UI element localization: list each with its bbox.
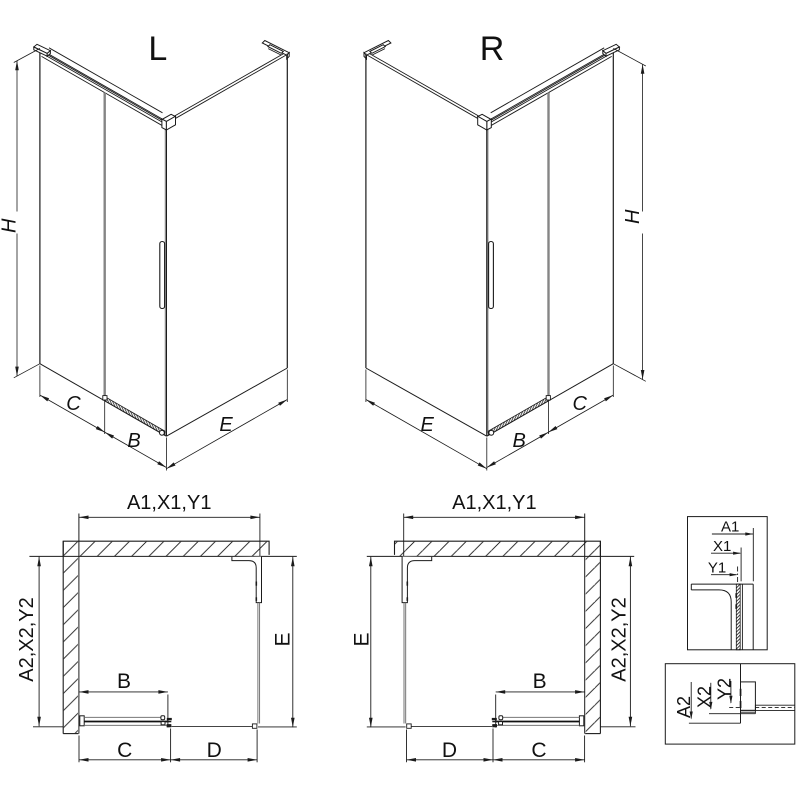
svg-text:C: C <box>531 739 546 762</box>
svg-text:A2,X2,Y2: A2,X2,Y2 <box>608 597 630 682</box>
svg-text:D: D <box>207 739 222 762</box>
svg-text:B: B <box>117 670 131 693</box>
svg-text:A1: A1 <box>721 519 739 536</box>
svg-text:A2,X2,Y2: A2,X2,Y2 <box>16 597 38 682</box>
svg-text:B: B <box>533 670 547 693</box>
svg-text:X2: X2 <box>694 686 714 708</box>
svg-text:E: E <box>219 414 233 436</box>
svg-text:D: D <box>442 739 457 762</box>
svg-text:E: E <box>421 414 435 436</box>
svg-text:Y2: Y2 <box>714 678 734 700</box>
svg-text:A1,X1,Y1: A1,X1,Y1 <box>452 492 537 514</box>
svg-text:X1: X1 <box>713 538 731 555</box>
svg-text:E: E <box>272 632 295 646</box>
svg-text:B: B <box>513 430 526 452</box>
svg-text:E: E <box>351 632 374 646</box>
svg-text:C: C <box>572 393 587 415</box>
svg-text:Y1: Y1 <box>708 559 726 576</box>
svg-text:H: H <box>622 209 644 224</box>
svg-text:A2: A2 <box>674 696 694 718</box>
svg-text:H: H <box>0 218 21 233</box>
svg-text:C: C <box>66 393 81 415</box>
svg-text:L: L <box>148 30 167 68</box>
svg-text:B: B <box>127 430 140 452</box>
svg-text:A1,X1,Y1: A1,X1,Y1 <box>127 492 212 514</box>
svg-text:R: R <box>480 30 505 68</box>
svg-text:C: C <box>117 739 132 762</box>
